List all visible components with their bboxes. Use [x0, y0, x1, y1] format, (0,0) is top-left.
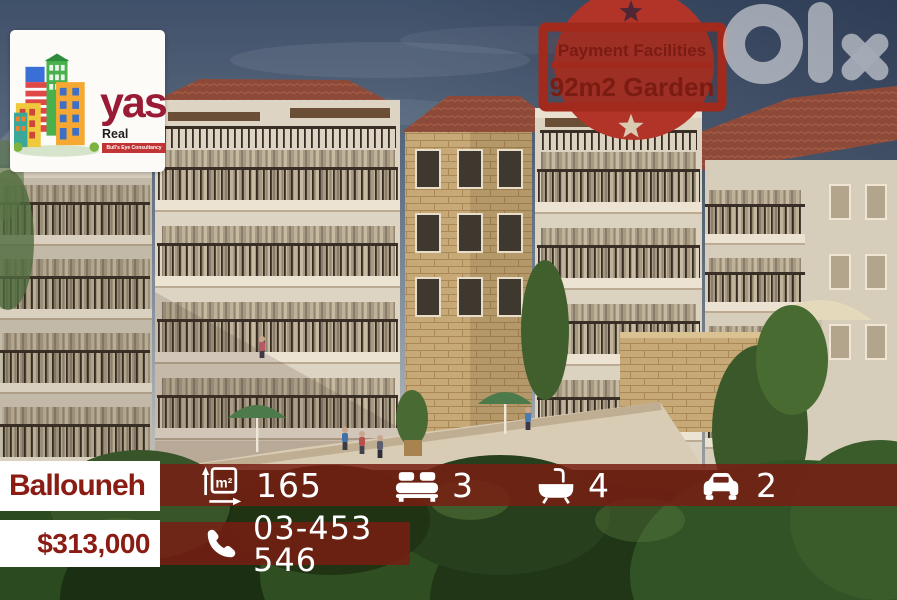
- badge-line1: Payment Facilities: [558, 41, 706, 60]
- stat-parking-value: 2: [756, 469, 778, 502]
- agency-buildings-illustration: [14, 50, 100, 162]
- area-icon: m²: [202, 464, 244, 506]
- stat-bathrooms-value: 4: [588, 469, 610, 502]
- bed-icon: [394, 469, 440, 502]
- price-box: $313,000: [0, 520, 160, 567]
- stat-bedrooms-value: 3: [452, 469, 474, 502]
- location-label: Ballouneh: [9, 469, 145, 503]
- listing-image: yas Real Estate Bull's Eye Consultancy P…: [0, 0, 897, 600]
- stat-parking: 2: [698, 469, 778, 502]
- phone-number: 03-453 546: [253, 512, 410, 576]
- promo-badge: Payment Facilities 92m2 Garden: [525, 0, 737, 152]
- agency-logo-card: yas Real Estate Bull's Eye Consultancy: [10, 30, 165, 172]
- phone-icon: [205, 527, 238, 560]
- location-box: Ballouneh: [0, 461, 160, 511]
- olx-watermark-icon: [720, 0, 897, 96]
- area-icon-unit-label: m²: [216, 476, 233, 491]
- badge-line2: 92m2 Garden: [550, 72, 715, 102]
- brand-tagline: Bull's Eye Consultancy: [102, 143, 166, 153]
- phone-bar: 03-453 546: [160, 522, 410, 565]
- bath-icon: [536, 465, 576, 505]
- brand-name: yas: [100, 82, 166, 125]
- price-label: $313,000: [37, 528, 150, 560]
- stat-bathrooms: 4: [536, 465, 610, 505]
- car-icon: [698, 469, 744, 502]
- stat-bedrooms: 3: [394, 469, 474, 502]
- stat-area: m² 165: [202, 464, 322, 506]
- stats-bar: m² 165 3: [160, 464, 897, 506]
- stat-area-value: 165: [256, 469, 322, 502]
